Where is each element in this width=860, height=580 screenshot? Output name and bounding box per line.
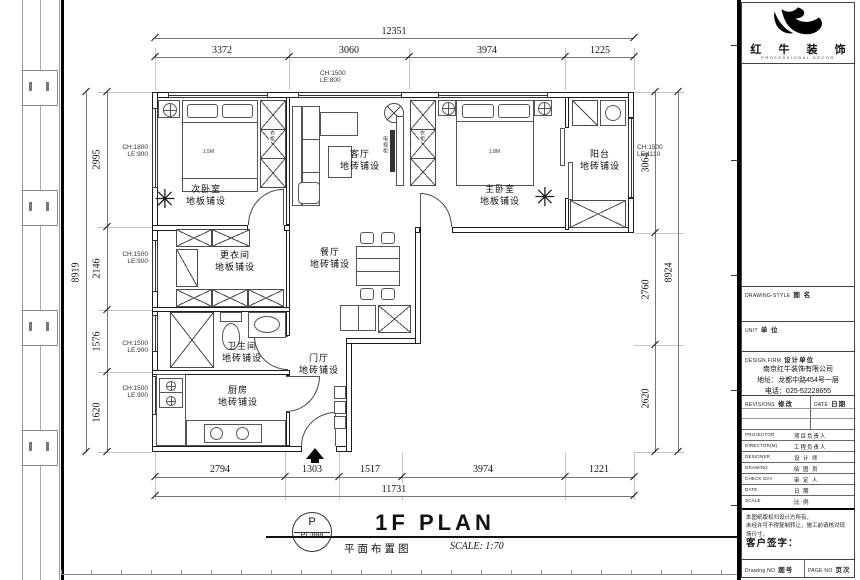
wardrobe-box — [176, 289, 212, 307]
room-label-living: 客厅地砖铺设 — [325, 148, 395, 172]
window-bath-left — [152, 315, 158, 352]
window-mark: CH:1500 LE:900 — [110, 340, 148, 355]
wardrobe-box — [260, 100, 286, 130]
strip-cell — [22, 70, 58, 106]
entry-arrow-stem — [311, 459, 319, 463]
window-living-top — [298, 92, 402, 98]
dim-value: 12351 — [364, 26, 424, 37]
chair — [360, 232, 374, 244]
sheet-title-cn: 平面布置图 — [344, 541, 412, 556]
logo-name-en: PROFESSIONAL DECOR — [742, 55, 854, 60]
door-leaf-master — [420, 193, 421, 227]
row-scale: SCALE比 例 — [742, 495, 854, 506]
window-dressing-left — [152, 240, 158, 292]
window-mark: CH:1800 LE:900 — [110, 144, 148, 159]
wardrobe-box — [176, 229, 212, 247]
row-drawing: DRAWING绘 图 员 — [742, 462, 854, 473]
revisions-header: REVISIONS修改 — [745, 398, 793, 408]
room-label-hall: 门厅地砖铺设 — [284, 352, 354, 376]
balcony-cabinet — [572, 100, 598, 126]
wardrobe-box — [212, 229, 250, 247]
wardrobe-box — [260, 158, 286, 188]
dim-line — [678, 92, 679, 452]
room-label-kitchen: 厨房地砖铺设 — [203, 384, 273, 408]
wall-master-bottom-a — [415, 227, 420, 233]
wall-entry-step — [346, 338, 421, 344]
chair — [360, 288, 374, 300]
pillow — [187, 104, 218, 118]
room-label-dining: 餐厅地砖铺设 — [295, 246, 365, 270]
strip-cell — [22, 190, 58, 226]
pillow — [462, 104, 494, 118]
wall-bottom-a — [152, 446, 302, 452]
window-mark: CH:1500 LE:900 — [110, 385, 148, 400]
room-label-balcony: 阳台地砖铺设 — [565, 148, 635, 172]
sheet-border-left — [61, 0, 64, 580]
strip-cell — [22, 430, 58, 466]
wall-int-v5 — [286, 412, 290, 446]
section-unit: UNIT单 位 — [745, 324, 779, 334]
drawing-no-label: Drawing NO图号 — [745, 564, 793, 574]
balcony-storage — [570, 200, 626, 228]
plant-icon: ✳ — [534, 184, 556, 210]
page-no-label: PAGE NO页次 — [808, 564, 851, 574]
fold-ticks — [61, 570, 737, 574]
wall-int-v1 — [286, 97, 290, 225]
sofa-chaise — [320, 112, 358, 136]
toilet-tank — [220, 312, 242, 322]
section-drawing-style: DRAWING-STYLE图 名 — [745, 289, 811, 299]
pillow — [498, 104, 530, 118]
wall-balcony-b — [565, 198, 569, 230]
reg-tick — [731, 275, 737, 276]
entry-arrow-head — [306, 448, 324, 459]
revisions-date-header: DATE日期 — [814, 398, 846, 408]
door-arc-entry — [301, 412, 336, 446]
dim-line — [107, 92, 108, 452]
door-arc-master — [420, 193, 452, 227]
drawing-sheet: 1.5M 衣柜 ✳ 电视柜 衣柜 1.8M ✳ — [0, 0, 860, 580]
strip-cell — [22, 310, 58, 346]
window-bedroom2-top — [168, 92, 268, 98]
wardrobe-box — [410, 100, 436, 130]
lamp-icon — [538, 102, 551, 115]
row-date: DATE日 期 — [742, 484, 854, 495]
hall-cabinet — [334, 401, 346, 414]
row-projector: PROJECTOR项目负责人 — [742, 429, 854, 440]
door-arc-bedroom2 — [248, 189, 283, 225]
chair — [381, 288, 395, 300]
row-designer: DESIGNER设 计 师 — [742, 451, 854, 462]
wall-int-v2 — [286, 229, 290, 310]
dim-line — [655, 92, 656, 452]
shoe-cabinet — [378, 305, 411, 333]
wall-int-v3 — [286, 310, 290, 336]
room-label-bath: 卫生间地砖铺设 — [207, 340, 277, 364]
wardrobe-box — [176, 249, 198, 287]
window-bedroom2-left — [152, 108, 158, 188]
hall-cabinet — [334, 416, 346, 429]
row-check: CHECK DAY审 定 人 — [742, 473, 854, 484]
window-mark: CH:1500 LE:800 — [320, 70, 360, 85]
wardrobe-box — [248, 289, 284, 307]
room-label-bedroom2: 次卧室地板铺设 — [171, 183, 241, 207]
bull-logo-icon — [764, 5, 834, 39]
title-block-panel: 红 牛 装 饰 PROFESSIONAL DECOR DRAWING-STYLE… — [741, 2, 855, 578]
reg-tick — [731, 390, 737, 391]
stamp-letter: P — [293, 516, 331, 528]
window-master-top — [438, 92, 548, 98]
tv-cabinet — [396, 116, 404, 186]
reg-tick — [731, 160, 737, 161]
bed-size-label: 1.5M — [203, 150, 214, 155]
company-address: 地址：龙都中路454号一层 — [742, 376, 854, 387]
dim-line — [86, 92, 87, 452]
wall-hall-right — [415, 227, 421, 344]
wall-right-a — [628, 92, 634, 118]
wardrobe-box — [212, 289, 248, 307]
sheet-border-bottom — [61, 574, 737, 575]
wall-right-b — [628, 198, 634, 233]
wardrobe-box — [410, 158, 436, 186]
dim-line — [155, 496, 634, 497]
row-director: DIRECTOR(M)工程负责人 — [742, 440, 854, 451]
wall-balcony-a — [565, 97, 569, 128]
armchair — [298, 182, 320, 204]
sheet-title-en: 1F PLAN — [340, 510, 530, 536]
drawing-stamp: P PL-888 — [292, 512, 332, 552]
door-arc-kitchen — [286, 376, 320, 412]
reg-tick — [731, 45, 737, 46]
signature-label: 客户签字： — [746, 535, 799, 549]
title-rule — [266, 536, 737, 538]
pillow — [222, 104, 253, 118]
lamp-icon — [163, 103, 177, 117]
chair — [381, 232, 395, 244]
door-leaf-bedroom2 — [283, 189, 284, 225]
room-label-dressing: 更衣间地板铺设 — [200, 249, 270, 273]
lamp-icon — [442, 102, 455, 115]
wardrobe-label: 衣柜 — [269, 130, 274, 142]
section-design-firm: DESIGN FIRM设计单位 — [745, 354, 814, 364]
hall-cabinet — [334, 386, 346, 399]
window-mark: CH:1500 LE:900 — [110, 251, 148, 266]
reg-tick — [731, 505, 737, 506]
dim-line — [155, 38, 634, 39]
sheet-scale: SCALE: 1:70 — [450, 541, 504, 552]
sink-icon — [254, 316, 280, 333]
bed-size-label: 1.8M — [489, 150, 500, 155]
room-label-master: 主卧室地板铺设 — [465, 183, 535, 207]
company-name: 南京红牛装饰有限公司 — [742, 365, 854, 376]
wardrobe-label: 衣柜 — [419, 130, 424, 142]
company-info: 南京红牛装饰有限公司 地址：龙都中路454号一层 电话：025-52228655 — [742, 365, 854, 398]
wall-bed2-bottom-b — [284, 225, 290, 231]
